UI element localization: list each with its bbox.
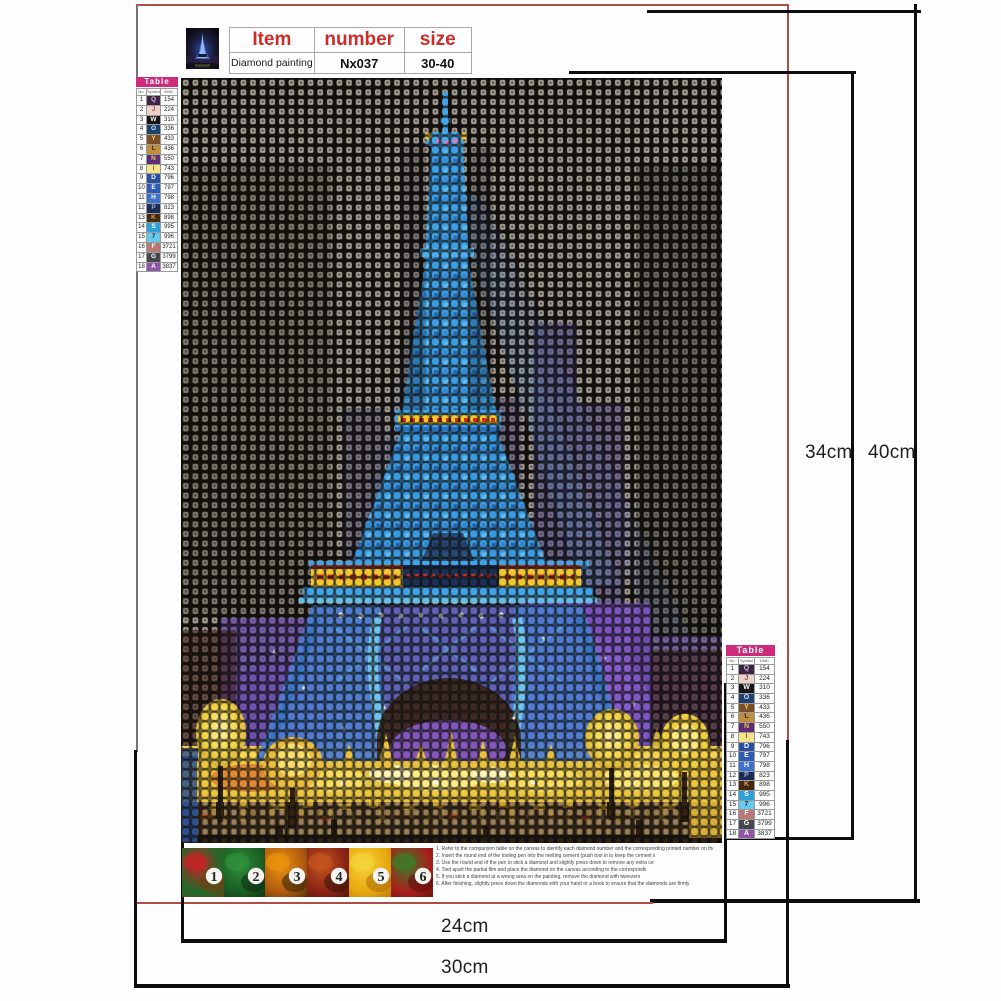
svg-text:2: 2 [252,870,259,885]
svg-text:tournesol: tournesol [195,64,210,68]
svg-text:5: 5 [377,870,384,885]
svg-text:3: 3 [294,870,301,885]
svg-text:1: 1 [211,870,218,885]
svg-text:6: 6 [419,870,426,885]
svg-text:4: 4 [336,870,343,885]
